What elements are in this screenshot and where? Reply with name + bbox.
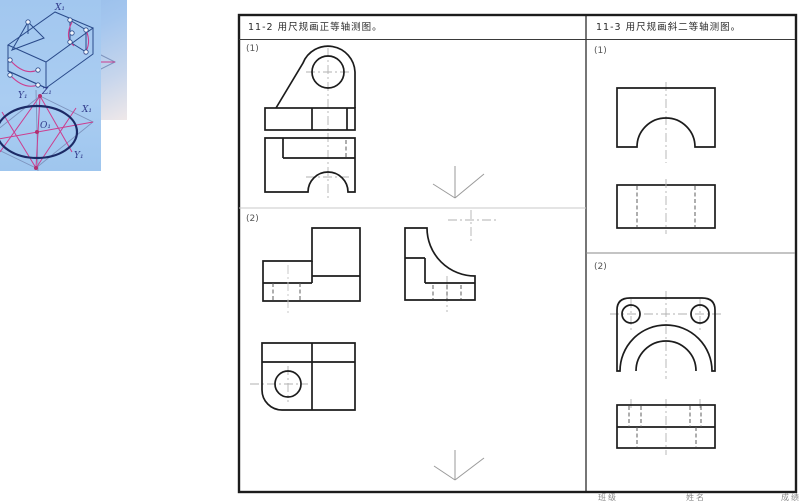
section-title-11-3: 11-3 用尺规画斜二等轴测图。 xyxy=(596,19,741,33)
footer-class-label: 班级 xyxy=(598,492,618,503)
worksheet-sheet xyxy=(0,0,800,500)
footer-score-label: 成绩 xyxy=(781,492,800,503)
page: { "figures": { "ellipse_construction": {… xyxy=(0,0,800,500)
problem-label-11-3-2: (2) xyxy=(594,262,607,272)
problem-label-11-3-1: (1) xyxy=(594,46,607,56)
problem-label-11-2-2: (2) xyxy=(246,214,259,224)
footer-name-label: 姓名 xyxy=(686,492,706,503)
problem-label-11-2-1: (1) xyxy=(246,44,259,54)
section-title-11-2: 11-2 用尺规画正等轴测图。 xyxy=(248,19,383,33)
